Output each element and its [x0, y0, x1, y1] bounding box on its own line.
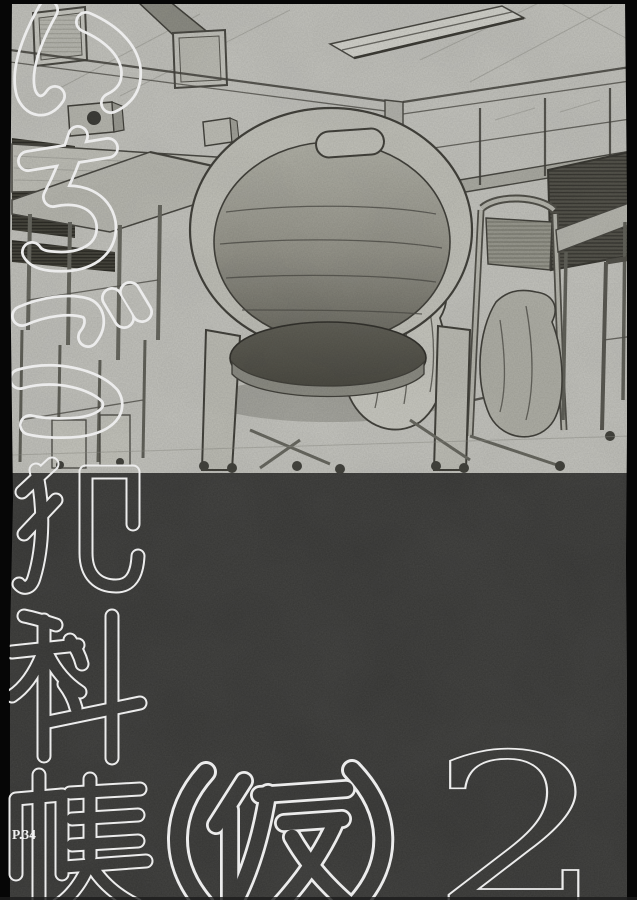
title-volume-number: 2 [430, 709, 605, 900]
page-canvas: 2 P.34 [0, 0, 637, 900]
title-outline-lettering: 2 [0, 0, 637, 900]
doujinshi-page: 2 P.34 いちご犯科帳(仮)2 [0, 0, 637, 900]
page-number: P.34 [12, 827, 36, 842]
